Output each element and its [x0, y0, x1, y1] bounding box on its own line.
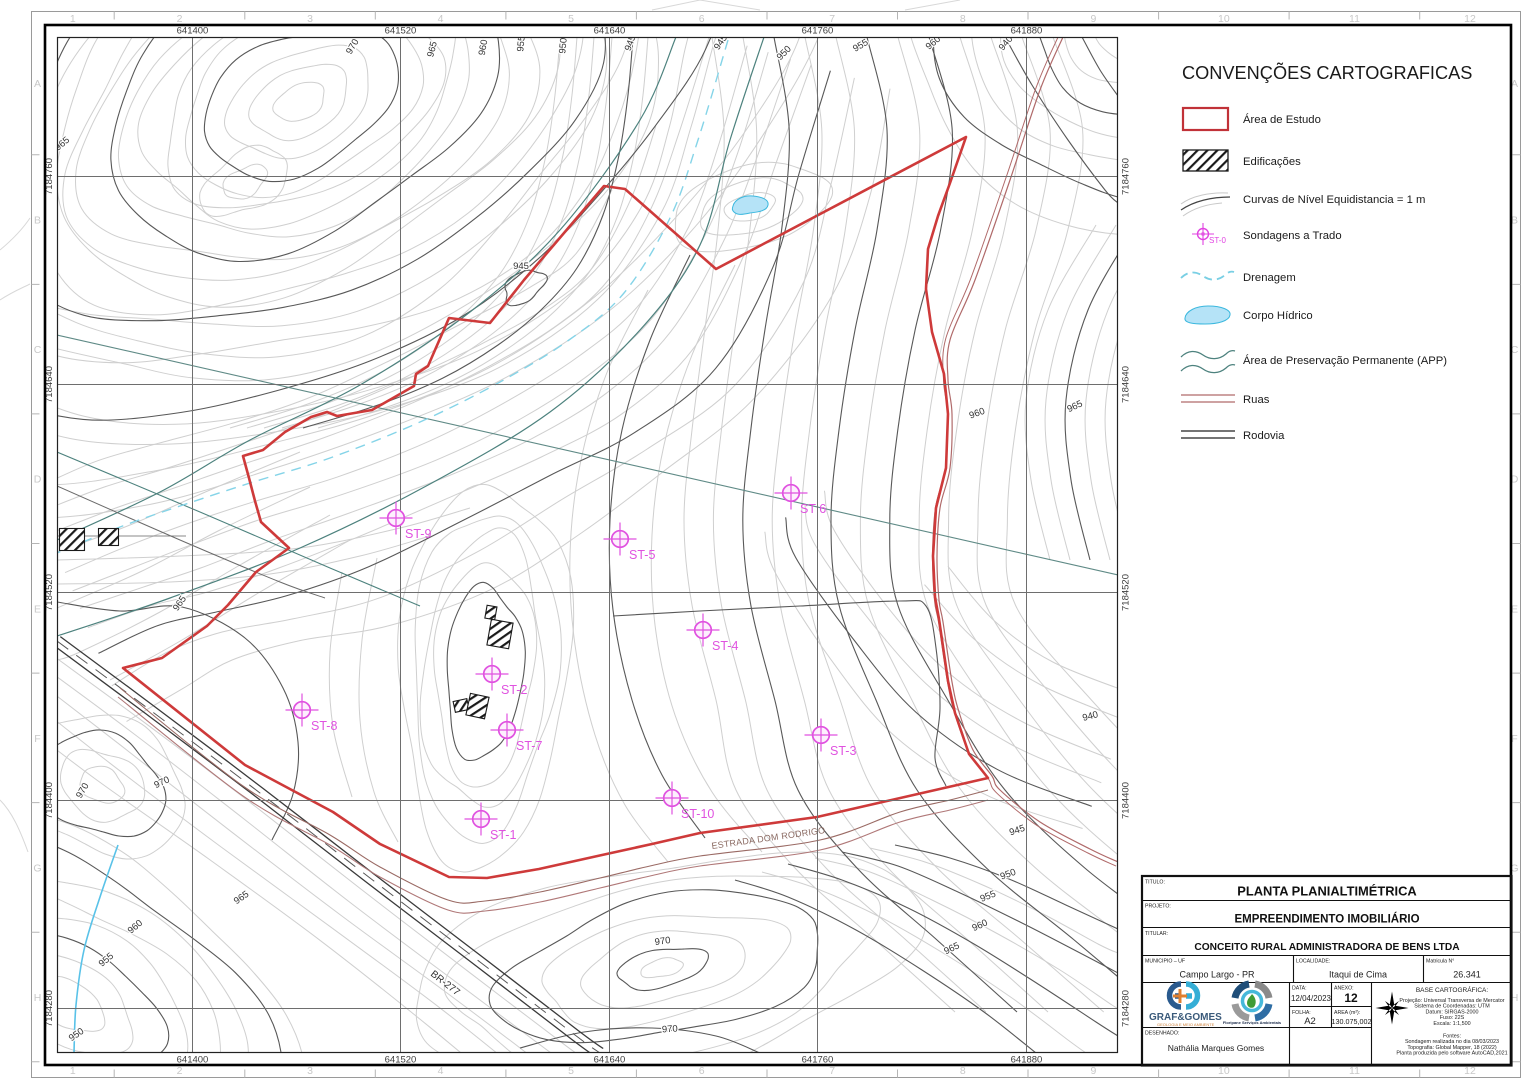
svg-text:8: 8: [960, 1065, 966, 1077]
svg-text:Nathália Marques Gomes: Nathália Marques Gomes: [1168, 1043, 1264, 1053]
svg-text:D: D: [34, 474, 42, 486]
svg-text:6: 6: [699, 1065, 705, 1077]
svg-text:A: A: [34, 78, 41, 90]
svg-text:TITULAR:: TITULAR:: [1145, 931, 1168, 937]
svg-text:ST-10: ST-10: [681, 807, 714, 821]
svg-text:4: 4: [438, 13, 444, 25]
svg-text:945: 945: [513, 261, 529, 272]
svg-text:7: 7: [829, 1065, 835, 1077]
svg-text:BASE CARTOGRÁFICA:: BASE CARTOGRÁFICA:: [1416, 985, 1489, 994]
svg-text:2: 2: [177, 1065, 183, 1077]
svg-text:9: 9: [1090, 1065, 1096, 1077]
svg-text:ST-9: ST-9: [405, 527, 431, 541]
svg-text:12: 12: [1344, 991, 1358, 1005]
svg-text:GEOLOGIA E MEIO AMBIENTE: GEOLOGIA E MEIO AMBIENTE: [1157, 1022, 1215, 1027]
svg-text:7184280: 7184280: [1121, 990, 1132, 1027]
svg-text:AREA (m²):: AREA (m²):: [1334, 1010, 1360, 1016]
svg-text:7: 7: [829, 13, 835, 25]
svg-text:10: 10: [1218, 13, 1230, 25]
svg-text:Planta produzida pelo software: Planta produzida pelo software AutoCAD,2…: [1396, 1051, 1507, 1057]
svg-text:641760: 641760: [802, 26, 834, 37]
svg-text:Matricula N°: Matricula N°: [1426, 959, 1454, 965]
svg-text:970: 970: [662, 1023, 679, 1035]
svg-text:ST-2: ST-2: [501, 683, 527, 697]
svg-text:F: F: [34, 733, 40, 745]
svg-text:10: 10: [1218, 1065, 1230, 1077]
svg-text:Campo Largo - PR: Campo Largo - PR: [1179, 970, 1255, 980]
svg-text:PROJETO:: PROJETO:: [1145, 904, 1171, 910]
svg-text:26.341: 26.341: [1453, 970, 1481, 980]
svg-text:Drenagem: Drenagem: [1243, 272, 1296, 284]
svg-text:5: 5: [568, 13, 574, 25]
svg-text:MUNICIPIO – UF: MUNICIPIO – UF: [1145, 959, 1185, 965]
svg-text:12: 12: [1464, 13, 1476, 25]
svg-text:641640: 641640: [594, 26, 626, 37]
svg-text:ST-0: ST-0: [1209, 236, 1226, 245]
svg-text:ST-7: ST-7: [516, 739, 542, 753]
svg-text:Rodovia: Rodovia: [1243, 430, 1285, 442]
svg-text:LOCALIDADE:: LOCALIDADE:: [1296, 959, 1330, 965]
svg-text:A2: A2: [1304, 1016, 1316, 1027]
svg-text:1: 1: [70, 1065, 76, 1077]
svg-text:4: 4: [438, 1065, 444, 1077]
svg-text:641400: 641400: [177, 26, 209, 37]
svg-text:641520: 641520: [385, 26, 417, 37]
svg-text:Floripane Serviços Ambientais: Floripane Serviços Ambientais: [1223, 1020, 1282, 1025]
svg-text:Ruas: Ruas: [1243, 394, 1270, 406]
svg-text:Área de Estudo: Área de Estudo: [1243, 113, 1321, 126]
svg-text:3: 3: [307, 1065, 313, 1077]
svg-text:EMPREENDIMENTO IMOBILIÁRIO: EMPREENDIMENTO IMOBILIÁRIO: [1234, 913, 1419, 926]
svg-text:8: 8: [960, 13, 966, 25]
svg-text:11: 11: [1349, 13, 1360, 25]
svg-text:2: 2: [177, 13, 183, 25]
svg-text:E: E: [34, 603, 41, 615]
svg-text:DESENHADO:: DESENHADO:: [1145, 1031, 1179, 1037]
svg-text:H: H: [34, 992, 42, 1004]
svg-text:CONVENÇÕES CARTOGRAFICAS: CONVENÇÕES CARTOGRAFICAS: [1182, 62, 1472, 83]
svg-text:ST-5: ST-5: [629, 548, 655, 562]
svg-text:7184760: 7184760: [1121, 158, 1132, 195]
svg-text:7184400: 7184400: [1121, 782, 1132, 819]
svg-text:Edificações: Edificações: [1243, 156, 1301, 168]
svg-text:Escala: 1:1,500: Escala: 1:1,500: [1433, 1021, 1470, 1027]
svg-text:Área de Preservação Permanente: Área de Preservação Permanente (APP): [1243, 354, 1447, 367]
svg-text:Curvas de Nível Equidistancia: Curvas de Nível Equidistancia = 1 m: [1243, 194, 1425, 206]
svg-text:ST 6: ST 6: [800, 502, 826, 516]
svg-text:7184520: 7184520: [1121, 574, 1132, 611]
svg-text:3: 3: [307, 13, 313, 25]
svg-text:970: 970: [654, 935, 671, 948]
svg-text:9: 9: [1090, 13, 1096, 25]
svg-text:641880: 641880: [1011, 26, 1043, 37]
svg-text:TITULO:: TITULO:: [1145, 880, 1165, 886]
svg-text:130.075,002: 130.075,002: [1332, 1017, 1372, 1026]
svg-text:PLANTA PLANIALTIMÉTRICA: PLANTA PLANIALTIMÉTRICA: [1237, 884, 1417, 899]
svg-text:Itaqui de Cima: Itaqui de Cima: [1329, 970, 1387, 980]
svg-text:B: B: [34, 215, 41, 227]
svg-text:7184640: 7184640: [1121, 366, 1132, 403]
svg-text:ST-1: ST-1: [490, 828, 516, 842]
svg-text:G: G: [33, 862, 41, 874]
svg-text:950: 950: [557, 37, 569, 54]
svg-text:DATA:: DATA:: [1292, 986, 1307, 992]
svg-text:ST-8: ST-8: [311, 719, 337, 733]
svg-text:11: 11: [1349, 1065, 1360, 1077]
svg-text:Sondagens a Trado: Sondagens a Trado: [1243, 230, 1342, 242]
svg-text:ST-4: ST-4: [712, 639, 738, 653]
svg-text:C: C: [34, 344, 42, 356]
svg-text:Corpo Hídrico: Corpo Hídrico: [1243, 310, 1313, 322]
svg-text:1: 1: [70, 13, 76, 25]
svg-text:12/04/2023: 12/04/2023: [1291, 994, 1332, 1003]
svg-text:12: 12: [1464, 1065, 1476, 1077]
svg-text:ST-3: ST-3: [830, 744, 856, 758]
svg-text:CONCEITO RURAL ADMINISTRADORA: CONCEITO RURAL ADMINISTRADORA DE BENS LT…: [1194, 942, 1460, 953]
svg-text:5: 5: [568, 1065, 574, 1077]
svg-text:6: 6: [699, 13, 705, 25]
